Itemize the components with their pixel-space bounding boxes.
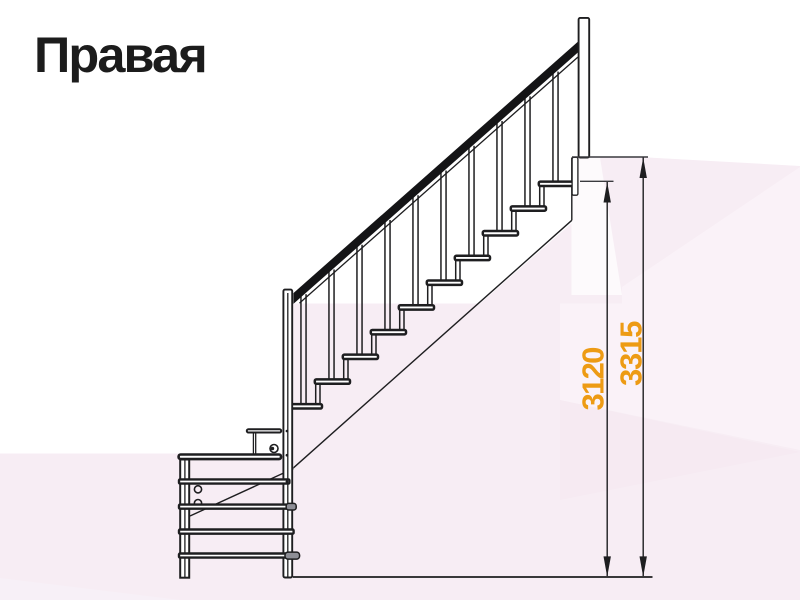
svg-text:3120: 3120: [576, 348, 611, 411]
svg-text:Правая: Правая: [34, 26, 206, 83]
svg-text:3315: 3315: [614, 321, 649, 386]
